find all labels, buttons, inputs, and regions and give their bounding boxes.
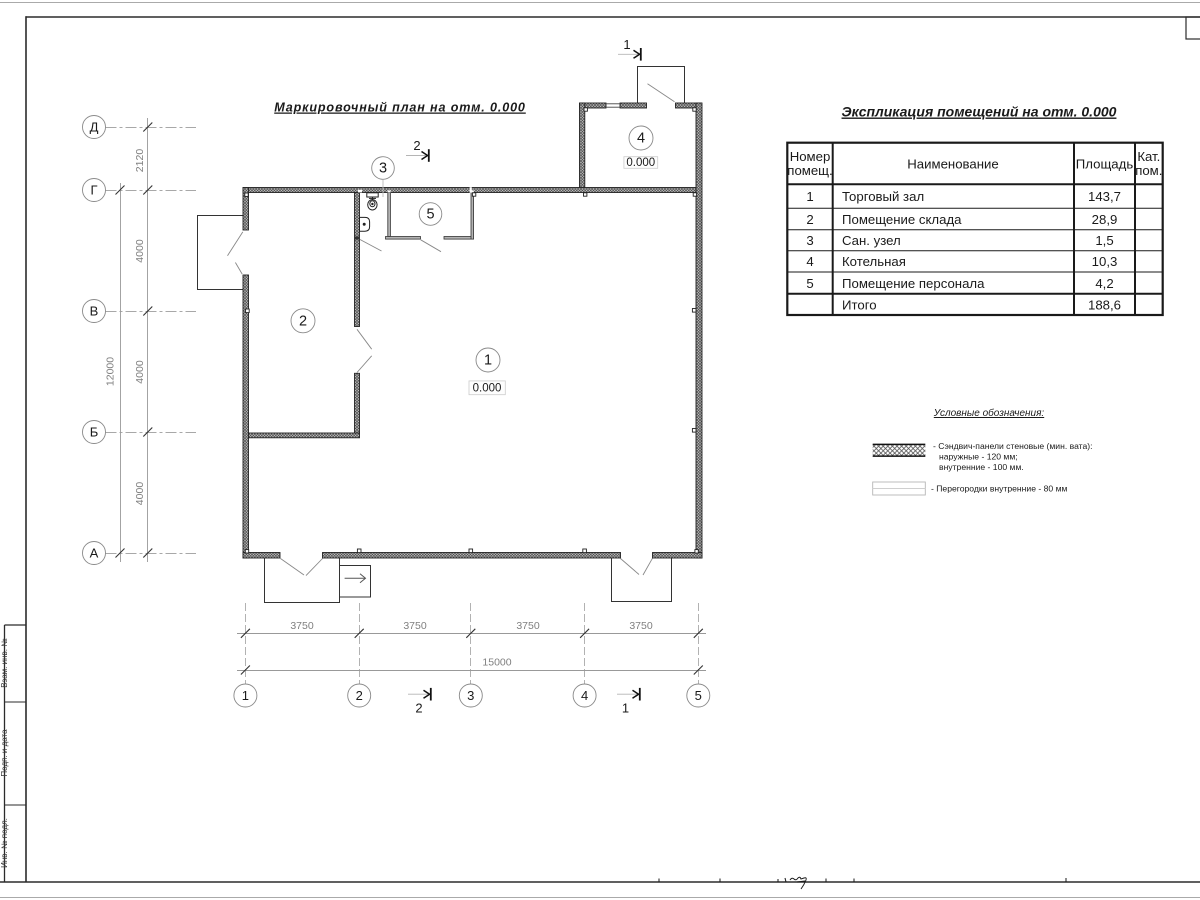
svg-text:1: 1 xyxy=(484,353,492,369)
svg-text:4000: 4000 xyxy=(134,360,146,384)
svg-text:1: 1 xyxy=(806,189,813,204)
svg-text:пом.: пом. xyxy=(1135,163,1162,178)
svg-text:Подп. и дата: Подп. и дата xyxy=(0,729,9,777)
svg-text:5: 5 xyxy=(806,276,813,291)
svg-text:Площадь: Площадь xyxy=(1076,157,1134,172)
svg-text:3750: 3750 xyxy=(516,620,540,632)
svg-text:5: 5 xyxy=(695,688,702,703)
svg-text:2: 2 xyxy=(299,313,307,329)
svg-text:5: 5 xyxy=(426,207,434,223)
svg-text:3750: 3750 xyxy=(290,620,314,632)
svg-text:1: 1 xyxy=(242,688,249,703)
svg-text:Маркировочный план на отм. 0.0: Маркировочный план на отм. 0.000 xyxy=(274,101,526,115)
svg-text:Условные обозначения:: Условные обозначения: xyxy=(933,407,1045,419)
svg-text:143,7: 143,7 xyxy=(1088,189,1121,204)
svg-text:В: В xyxy=(90,304,99,319)
svg-text:2: 2 xyxy=(413,138,420,153)
svg-text:помещ.: помещ. xyxy=(787,163,832,178)
svg-text:188,6: 188,6 xyxy=(1088,297,1121,312)
svg-text:3750: 3750 xyxy=(403,620,427,632)
svg-text:Котельная: Котельная xyxy=(842,254,906,269)
svg-text:- Сэндвич-панели стеновые (мин: - Сэндвич-панели стеновые (мин. вата): xyxy=(933,441,1093,451)
svg-text:4000: 4000 xyxy=(134,239,146,263)
svg-text:1,5: 1,5 xyxy=(1095,233,1113,248)
svg-text:наружные - 120 мм;: наружные - 120 мм; xyxy=(939,452,1018,462)
svg-text:4: 4 xyxy=(581,688,588,703)
svg-text:28,9: 28,9 xyxy=(1092,212,1118,227)
svg-text:2: 2 xyxy=(415,701,422,716)
svg-text:Наименование: Наименование xyxy=(907,157,998,172)
svg-text:внутренние - 100 мм.: внутренние - 100 мм. xyxy=(939,462,1024,472)
svg-text:Номер: Номер xyxy=(790,149,831,164)
svg-text:4: 4 xyxy=(806,254,813,269)
svg-text:Помещение персонала: Помещение персонала xyxy=(842,276,985,291)
svg-text:Торговый зал: Торговый зал xyxy=(842,189,924,204)
svg-text:Кат.: Кат. xyxy=(1137,149,1160,164)
svg-text:3: 3 xyxy=(467,688,474,703)
svg-text:0.000: 0.000 xyxy=(626,157,655,169)
svg-text:- Перегородки внутренние - 80: - Перегородки внутренние - 80 мм xyxy=(931,484,1067,494)
svg-text:4,2: 4,2 xyxy=(1095,276,1113,291)
svg-text:Сан. узел: Сан. узел xyxy=(842,233,901,248)
svg-text:Итого: Итого xyxy=(842,297,877,312)
svg-text:1: 1 xyxy=(623,37,630,52)
svg-text:15000: 15000 xyxy=(482,657,511,669)
svg-text:Помещение склада: Помещение склада xyxy=(842,212,962,227)
svg-text:3: 3 xyxy=(806,233,813,248)
svg-text:А: А xyxy=(90,546,99,561)
svg-text:Инв. № подл.: Инв. № подл. xyxy=(0,818,9,868)
svg-text:10,3: 10,3 xyxy=(1092,254,1118,269)
svg-text:4: 4 xyxy=(637,131,645,147)
svg-text:3750: 3750 xyxy=(629,620,653,632)
svg-text:Д: Д xyxy=(90,120,99,135)
svg-text:1: 1 xyxy=(622,701,629,716)
svg-text:12000: 12000 xyxy=(105,357,117,386)
svg-text:Б: Б xyxy=(90,425,99,440)
svg-text:4000: 4000 xyxy=(134,482,146,506)
svg-text:3: 3 xyxy=(379,161,387,177)
svg-text:Взам. инв. №: Взам. инв. № xyxy=(0,638,9,688)
svg-text:2: 2 xyxy=(806,212,813,227)
svg-text:0.000: 0.000 xyxy=(473,383,502,395)
svg-text:Экспликация помещений на отм.: Экспликация помещений на отм. 0.000 xyxy=(842,104,1117,120)
svg-text:2: 2 xyxy=(356,688,363,703)
svg-text:Г: Г xyxy=(90,183,97,198)
svg-text:2120: 2120 xyxy=(134,149,146,173)
